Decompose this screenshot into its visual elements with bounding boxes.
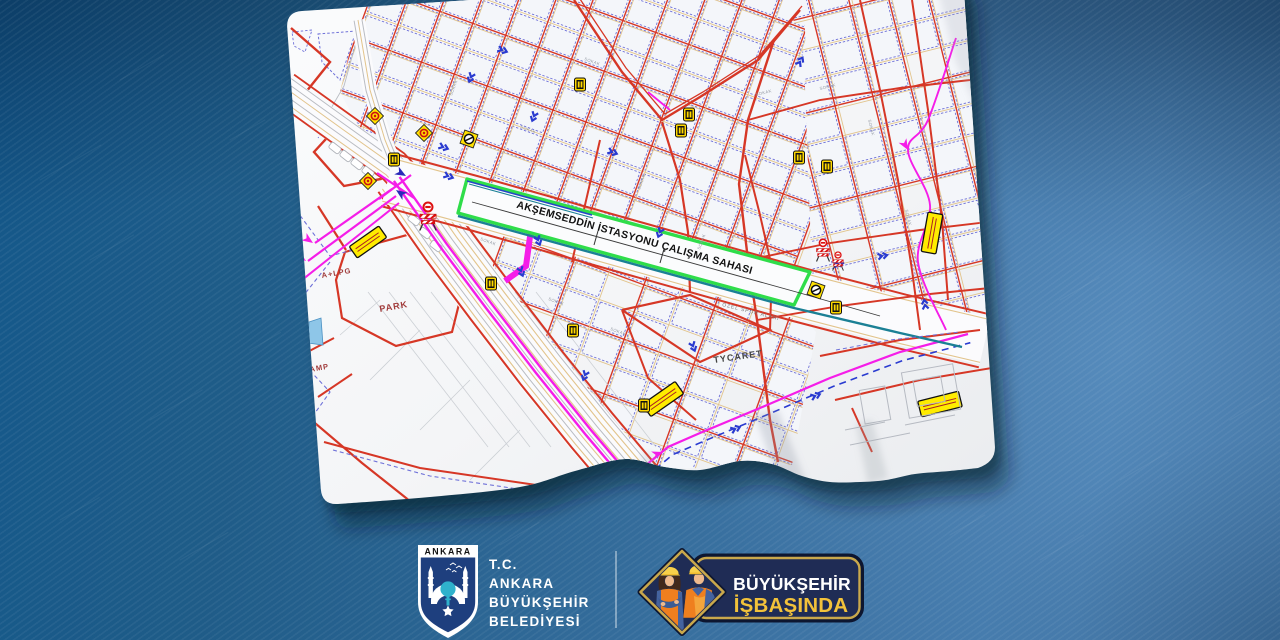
svg-text:İŞBAŞINDA: İŞBAŞINDA	[734, 594, 849, 617]
svg-text:ANKARA: ANKARA	[424, 547, 471, 557]
svg-text:BÜYÜKŞEHİR: BÜYÜKŞEHİR	[733, 574, 851, 594]
svg-text:BÜYÜKŞEHİR: BÜYÜKŞEHİR	[489, 595, 590, 610]
svg-text:T.C.: T.C.	[489, 557, 518, 572]
svg-text:BELEDİYESİ: BELEDİYESİ	[489, 614, 581, 629]
svg-text:ANKARA: ANKARA	[489, 576, 554, 591]
